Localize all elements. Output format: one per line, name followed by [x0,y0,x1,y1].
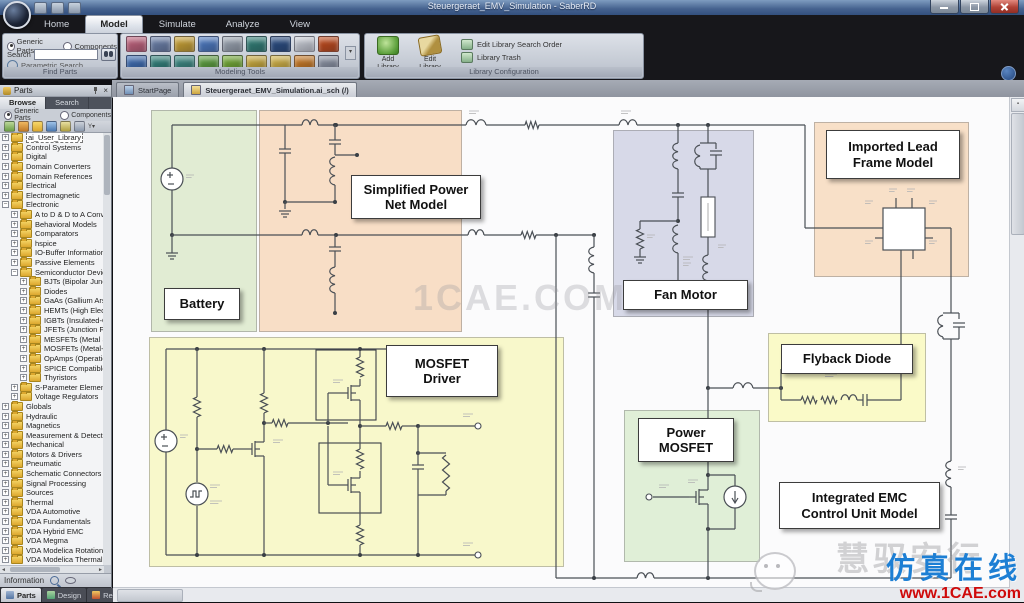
tree-item[interactable]: +MESFETs (Metal Semi [0,334,104,344]
sidebar-tab-search[interactable]: Search [46,97,89,109]
modeling-tool-icon-4[interactable] [198,36,219,52]
window-title: Steuergeraet_EMV_Simulation - SaberRD [0,1,1024,11]
folder-icon [11,421,23,430]
tree-item-label: S-Parameter Elements [35,383,104,392]
ribbon-group-library-configuration: Add Library Edit Library Edit Library Se… [364,33,644,79]
scrollbar-thumb[interactable] [10,567,60,572]
folder-icon [20,210,32,219]
radio-icon [4,111,12,120]
tree-item-label: Digital [26,152,47,161]
tree-item-label: Passive Elements [35,258,95,267]
search-binoculars-icon[interactable] [101,48,116,61]
tree-item-label: VDA Megma [26,536,68,545]
tree-item-label: Electronic [26,200,59,209]
tree-item[interactable]: +MOSFETs (Metal-Oxid [0,344,104,354]
tree-item-label: hspice [35,239,57,248]
block-label-power-mosfet[interactable]: PowerMOSFET [638,418,734,462]
folder-icon [11,488,23,497]
expander-icon[interactable]: + [20,374,27,381]
quick-access-toolbar [34,2,81,14]
information-bar: Information [0,573,111,587]
information-label: Information [4,576,44,585]
edit-library-search-order-button[interactable]: Edit Library Search Order [461,39,562,50]
radio-icon [60,111,69,120]
folder-icon [11,402,23,411]
search-label: Search [7,50,31,59]
tree-item-label: Thermal [26,498,54,507]
expander-icon[interactable]: + [2,460,9,467]
tree-item-label: MESFETs (Metal Semi [44,335,104,344]
tree-item[interactable]: +GaAs (Gallium Arseni [0,296,104,306]
application-menu-orb[interactable] [3,1,31,29]
tree-item-label: IGBTs (Insulated-Gate [44,316,104,325]
group-caption: Library Configuration [366,67,642,77]
tree-item[interactable]: +A to D & D to A Converte [0,210,104,220]
parts-tree: +ai_User_Library+Control Systems+Digital… [0,133,105,565]
tree-item-label: Comparators [35,229,78,238]
canvas-vertical-scrollbar[interactable]: ▪ [1009,97,1024,588]
folder-icon [11,536,23,545]
scrollbar-thumb[interactable] [104,135,110,195]
expander-icon[interactable]: − [2,201,9,208]
expander-icon[interactable]: + [2,163,9,170]
folder-icon [11,555,23,564]
block-label-fan-motor[interactable]: Fan Motor [623,280,748,310]
sidebar-title: Parts [14,86,33,95]
block-label-mosfet-driver[interactable]: MOSFETDriver [386,345,498,397]
folder-icon [20,392,32,401]
tree-item-label: Mechanical [26,440,64,449]
tree-vertical-scrollbar[interactable] [103,133,111,565]
tree-item-label: Control Systems [26,143,81,152]
maximize-button[interactable] [960,0,989,14]
tree-item-label: Electromagnetic [26,191,80,200]
block-label-emc-unit[interactable]: Integrated EMCControl Unit Model [779,482,940,529]
bottom-tab-parts[interactable]: Parts [1,588,41,602]
group-caption: Modeling Tools [122,67,358,77]
tree-item[interactable]: +HEMTs (High Electron [0,306,104,316]
expander-icon[interactable]: + [11,230,18,237]
document-icon [191,85,201,95]
tree-item-label: VDA Modelica Rotational [26,546,104,555]
sidebar-components-radio[interactable]: Components [60,111,111,120]
tree-item-label: OpAmps (Operational [44,354,104,363]
folder-icon [29,306,41,315]
design-tab-icon [47,591,55,599]
expander-icon[interactable]: + [20,365,27,372]
gear-icon[interactable] [74,121,85,132]
scroll-up-icon[interactable]: ▪ [1011,98,1024,112]
tree-item[interactable]: +IGBTs (Insulated-Gate [0,315,104,325]
modeling-tool-icon-8[interactable] [294,36,315,52]
folder-icon [11,133,23,142]
folder-icon [20,258,32,267]
schematic-area[interactable]: 1CAE.COM BatterySimplified PowerNet Mode… [113,97,1010,588]
tree-item-label: SPICE Compatible Mo [44,364,104,373]
folder-icon [11,162,23,171]
expander-icon[interactable]: + [2,144,9,151]
add-library-icon [377,36,399,55]
tree-item-label: IO-Buffer Information Spe [35,248,104,257]
tree-item-label: A to D & D to A Converte [35,210,104,219]
expander-icon[interactable]: + [2,192,9,199]
modeling-tool-icon-7[interactable] [270,36,291,52]
library-trash-button[interactable]: Library Trash [461,52,521,63]
filter-dropdown-icon[interactable]: Y▾ [88,123,95,130]
canvas-watermark: 1CAE.COM [413,277,627,319]
tree-item[interactable]: +SPICE Compatible Mo [0,363,104,373]
expander-icon[interactable]: + [2,182,9,189]
expander-icon[interactable]: + [11,240,18,247]
expander-icon[interactable]: + [2,547,9,554]
modeling-tools-more-button[interactable]: ▾ [345,46,356,60]
expander-icon[interactable]: + [20,278,27,285]
tree-item-label: Measurement & Detection [26,431,104,440]
expander-icon[interactable]: + [20,307,27,314]
sidebar-tool-icon[interactable] [4,121,15,132]
tree-item[interactable]: +Diodes [0,287,104,297]
ribbon-tab-home[interactable]: Home [30,16,83,33]
expander-icon[interactable]: + [11,211,18,218]
tree-item[interactable]: +VDA Modelica Thermal [0,555,104,565]
folder-icon[interactable] [32,121,43,132]
tree-item[interactable]: +Behavioral Models [0,219,104,229]
tree-item[interactable]: +Globals [0,402,104,412]
tree-item-label: JFETs (Junction Field- [44,325,104,334]
tree-item-label: VDA Hybrid EMC [26,527,84,536]
group-caption: Find Parts [4,67,116,77]
folder-icon [29,373,41,382]
tree-item[interactable]: +OpAmps (Operational [0,354,104,364]
block-label-battery[interactable]: Battery [164,288,240,320]
expander-icon[interactable]: + [2,413,9,420]
expander-icon[interactable]: + [2,528,9,535]
block-label-lead-frame[interactable]: Imported LeadFrame Model [826,130,960,179]
parts-sidebar: Parts × BrowseSearch Generic Parts Compo… [0,85,112,602]
tree-item-label: Electrical [26,181,56,190]
expander-icon[interactable]: + [20,326,27,333]
tree-item-label: Hydraulic [26,412,57,421]
modeling-tool-icon-1[interactable] [126,36,147,52]
expander-icon[interactable]: + [2,537,9,544]
tree-item[interactable]: +S-Parameter Elements [0,382,104,392]
folder-icon [29,325,41,334]
expander-icon[interactable]: + [2,441,9,448]
tree-item-label: Signal Processing [26,479,86,488]
tree-item-label: ai_User_Library [26,133,83,143]
scrollbar-thumb[interactable] [117,589,183,602]
expander-icon[interactable]: + [2,432,9,439]
app-window: { "window": { "title": "Steuergeraet_EMV… [0,0,1024,602]
schematic-canvas[interactable]: 1CAE.COM BatterySimplified PowerNet Mode… [113,97,1024,602]
expander-icon[interactable]: + [2,173,9,180]
tree-item[interactable]: +IO-Buffer Information Spe [0,248,104,258]
expander-icon[interactable]: + [11,249,18,256]
maximize-icon [970,3,979,11]
expander-icon[interactable]: − [11,269,18,276]
expander-icon[interactable]: + [20,297,27,304]
tree-item[interactable]: +Passive Elements [0,258,104,268]
magnifier-icon[interactable] [50,576,59,585]
expander-icon[interactable]: + [20,317,27,324]
expander-icon[interactable]: + [20,355,27,362]
window-controls [930,0,1019,14]
tree-item-label: GaAs (Gallium Arseni [44,296,104,305]
folder-icon [11,469,23,478]
edit-library-icon [418,34,443,57]
ribbon-group-find-parts: Generic Parts Components Search Parametr… [2,33,118,79]
ribbon-tab-analyze[interactable]: Analyze [212,16,274,33]
folder-icon [11,181,23,190]
search-order-icon [461,39,473,50]
folder-icon [29,354,41,363]
expander-icon[interactable]: + [2,508,9,515]
scrollbar-thumb[interactable] [1011,113,1024,235]
redo-icon[interactable] [68,2,81,14]
block-label-flyback[interactable]: Flyback Diode [781,344,913,374]
expander-icon[interactable]: + [2,489,9,496]
tree-item-label: Thyristors [44,373,77,382]
tree-item-label: Diodes [44,287,67,296]
tree-item-label: Magnetics [26,421,60,430]
tree-item[interactable]: +Magnetics [0,421,104,431]
document-tab-strip: StartPageSteuergeraet_EMV_Simulation.ai_… [112,80,1024,98]
tree-item[interactable]: +Comparators [0,229,104,239]
expander-icon[interactable]: + [2,518,9,525]
expander-icon[interactable]: + [11,221,18,228]
tree-item-label: Semiconductor Devices [35,268,104,277]
block-label-power-net[interactable]: Simplified PowerNet Model [351,175,481,219]
save-icon[interactable] [34,2,47,14]
tree-item[interactable]: +Thyristors [0,373,104,383]
folder-icon [11,517,23,526]
expander-icon[interactable]: + [2,470,9,477]
tree-item-label: Domain References [26,172,92,181]
expander-icon[interactable]: + [11,259,18,266]
document-tab[interactable]: StartPage [116,82,179,97]
close-button[interactable] [990,0,1019,14]
ribbon-tab-simulate[interactable]: Simulate [145,16,210,33]
ribbon-tab-view[interactable]: View [276,16,324,33]
tree-item-label: Behavioral Models [35,220,97,229]
ribbon-group-modeling-tools: ▾ Modeling Tools [120,33,360,79]
expander-icon[interactable]: + [2,134,9,141]
sidebar-header: Parts × [0,85,111,97]
ribbon-tab-model[interactable]: Model [85,15,142,33]
search-input[interactable] [34,49,98,60]
expander-icon[interactable]: + [2,480,9,487]
tree-item-label: VDA Modelica Thermal [26,555,103,564]
expander-icon[interactable]: + [11,384,18,391]
sidebar-toolbar: Y▾ [0,121,111,133]
ribbon-tab-bar: HomeModelSimulateAnalyzeView [0,15,1024,33]
sidebar-generic-parts-radio[interactable]: Generic Parts [4,108,52,122]
expander-icon[interactable]: + [2,499,9,506]
tree-item[interactable]: +VDA Fundamentals [0,517,104,527]
document-tab[interactable]: Steuergeraet_EMV_Simulation.ai_sch (/) [183,82,356,97]
modeling-tool-icon-6[interactable] [246,36,267,52]
tree-item-label: Voltage Regulators [35,392,98,401]
parts-tab-icon [6,591,14,599]
parts-panel-icon [3,87,11,95]
help-button[interactable] [1001,66,1016,81]
eye-icon[interactable] [65,577,76,584]
tree-item-label: Pneumatic [26,459,61,468]
modeling-tool-icon-5[interactable] [222,36,243,52]
tree-item[interactable]: +JFETs (Junction Field- [0,325,104,335]
expander-icon[interactable]: + [2,403,9,410]
sidebar-bottom-tabs: PartsDesignResults [0,587,111,602]
close-panel-icon[interactable]: × [103,87,108,94]
sidebar-tool-icon[interactable] [60,121,71,132]
refresh-icon[interactable] [18,121,29,132]
expander-icon[interactable]: + [2,153,9,160]
results-tab-icon [92,591,100,599]
minimize-button[interactable] [930,0,959,14]
expander-icon[interactable]: + [2,556,9,563]
canvas-horizontal-scrollbar[interactable] [113,587,1010,602]
minimize-icon [940,7,948,9]
tree-item[interactable]: +BJTs (Bipolar Junction [0,277,104,287]
tree-item-label: VDA Automotive [26,507,80,516]
folder-icon [11,440,23,449]
tree-item[interactable]: +hspice [0,239,104,249]
tree-item-label: VDA Fundamentals [26,517,91,526]
bottom-tab-design[interactable]: Design [42,588,86,602]
expander-icon[interactable]: + [2,451,9,458]
tree-item-label: Schematic Connectors [26,469,101,478]
title-bar: Steuergeraet_EMV_Simulation - SaberRD [0,0,1024,16]
tree-item-label: HEMTs (High Electron [44,306,104,315]
expander-icon[interactable]: + [20,288,27,295]
tree-item-label: Sources [26,488,54,497]
tree-item-label: MOSFETs (Metal-Oxid [44,344,104,353]
tree-item[interactable]: +Domain Converters [0,162,104,172]
undo-icon[interactable] [51,2,64,14]
modeling-tool-icon-9[interactable] [318,36,339,52]
tree-item[interactable]: −Electronic [0,200,104,210]
modeling-tool-icon-2[interactable] [150,36,171,52]
folder-icon [20,229,32,238]
expander-icon[interactable]: + [20,336,27,343]
sidebar-tool-icon[interactable] [46,121,57,132]
pin-icon[interactable] [92,87,99,94]
ribbon: Generic Parts Components Search Parametr… [0,33,1024,80]
expander-icon[interactable]: + [20,345,27,352]
tree-item-label: Domain Converters [26,162,91,171]
tree-item[interactable]: −Semiconductor Devices [0,267,104,277]
expander-icon[interactable]: + [2,422,9,429]
modeling-tool-icon-3[interactable] [174,36,195,52]
expander-icon[interactable]: + [11,393,18,400]
tree-item-label: Globals [26,402,51,411]
tree-item-label: BJTs (Bipolar Junction [44,277,104,286]
tree-item[interactable]: +Schematic Connectors [0,469,104,479]
tree-item-label: Motors & Drivers [26,450,82,459]
folder-icon [29,277,41,286]
startpage-icon [124,85,134,95]
trash-icon [461,52,473,63]
